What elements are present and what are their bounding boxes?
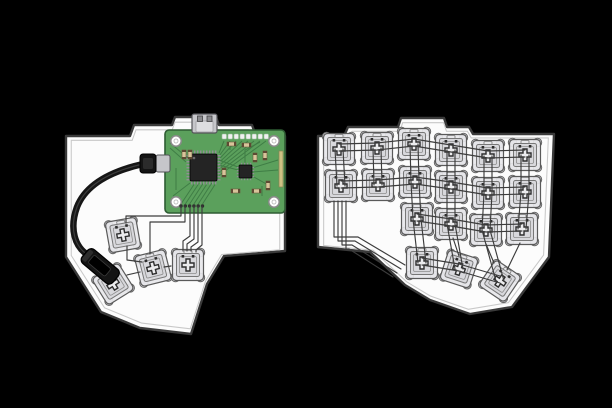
key-switch <box>360 131 393 164</box>
pcb-passive-component <box>231 189 240 193</box>
illustration-canvas <box>0 0 612 408</box>
pcb-silkscreen-pad <box>264 134 269 139</box>
switch-pin <box>421 209 424 212</box>
key-switch <box>171 248 204 281</box>
pcb-passive-component <box>227 142 236 146</box>
switch-pin <box>492 146 495 149</box>
pcb-passive-component <box>252 189 261 193</box>
switch-pin <box>333 139 336 142</box>
key-switch <box>104 216 143 255</box>
key-switch <box>398 165 431 198</box>
switch-pin <box>125 224 128 227</box>
switch-pin <box>115 226 118 229</box>
pcb-passive-component <box>263 151 267 160</box>
switch-pin <box>455 140 458 143</box>
key-switch <box>505 212 538 245</box>
switch-pin <box>426 253 429 256</box>
micro-usb-receptacle <box>156 155 170 172</box>
pcb-silkscreen-pad <box>240 134 245 139</box>
pcb-silkscreen-pad <box>252 134 257 139</box>
switch-pin <box>529 145 532 148</box>
key-switch <box>361 168 394 201</box>
switch-pin <box>381 138 384 141</box>
pcb-passive-component <box>182 150 186 159</box>
keyboard-assembly-diagram <box>0 0 612 408</box>
secondary-chip <box>237 163 254 180</box>
pcb-silkscreen-pad <box>222 134 227 139</box>
switch-pin <box>343 139 346 142</box>
pcb-edge-connector <box>279 151 283 187</box>
switch-pin <box>182 255 185 258</box>
pcb-silkscreen-pad <box>228 134 233 139</box>
pcb-mounting-hole-center <box>174 200 178 204</box>
pcb-passive-component <box>242 143 251 147</box>
pcb-mounting-hole-center <box>174 139 178 143</box>
cable-plug-pcb <box>140 154 156 173</box>
key-switch <box>508 138 541 171</box>
switch-pin <box>519 145 522 148</box>
pcb-passive-component <box>222 168 226 177</box>
switch-pin <box>482 146 485 149</box>
pcb-passive-component <box>253 153 257 162</box>
switch-pin <box>192 255 195 258</box>
pcb-passive-component <box>266 181 270 190</box>
switch-pin <box>371 138 374 141</box>
switch-pin <box>345 176 348 179</box>
switch-pin <box>418 134 421 137</box>
usb-port <box>192 114 217 133</box>
switch-pin <box>408 134 411 137</box>
pcb-passive-component <box>188 150 192 159</box>
key-switch <box>397 127 430 160</box>
pcb-silkscreen-pad <box>258 134 263 139</box>
pcb-mounting-hole-center <box>272 139 276 143</box>
key-switch <box>508 175 541 208</box>
switch-pin <box>480 220 483 223</box>
key-switch <box>324 169 357 202</box>
pcb-silkscreen-pad <box>246 134 251 139</box>
key-switch <box>400 202 433 235</box>
key-switch <box>322 132 355 165</box>
pcb-mounting-hole-center <box>272 200 276 204</box>
switch-pin <box>516 219 519 222</box>
pcb-silkscreen-pad <box>234 134 239 139</box>
switch-pin <box>445 140 448 143</box>
key-switch <box>405 246 438 279</box>
